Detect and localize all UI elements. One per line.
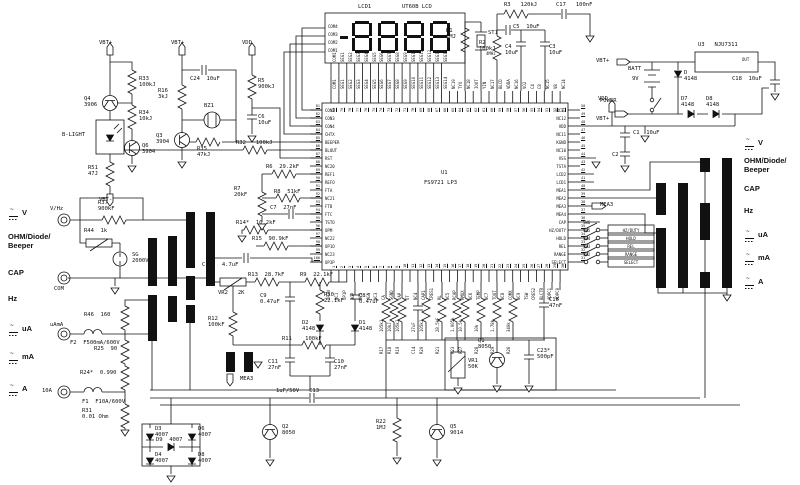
lcd-pin-SEG10: SEG10 [411,50,416,62]
ic-pin-number: 22 [498,264,502,268]
acdc-icon [8,328,19,337]
ic-pin-number: 44 [581,152,585,156]
acdc-icon [744,142,755,151]
ic-pin-number: 83 [309,120,320,124]
selector-left-v: V [22,208,27,217]
lcd-digit-3-segment [404,38,407,51]
switch-ref-SW2: SW2 [583,252,590,257]
label-r3: R3 120kJ [504,2,537,8]
ic-pin-number: 67 [435,108,439,112]
label-r24: R24* 0.990 [80,370,116,376]
ic-pin-left-NC21: NC21 [325,196,335,201]
ic-pin-number: 73 [387,108,391,112]
ic-pin-right-NC10: NC10 [522,148,566,153]
ic-pin-number: 78 [348,108,352,112]
label-q3: Q3 3904 [156,133,169,146]
label-batt-value: 9V [632,76,639,82]
label-vdd-1: VDD [242,40,252,46]
ic-pin-number: 42 [581,168,585,172]
ic-pin-left-OPM: OPM [325,228,332,233]
ic-pin-number: 86 [309,144,320,148]
ic-pin-bottom-RL: RL [437,295,442,300]
ic-pin-right-NC11: NC11 [522,132,566,137]
ic-pin-top-TYO: TYO [458,82,463,89]
ic-pin-bottom-ADPC1: ADPC1 [547,288,552,300]
label-com3: COM3 [328,33,338,38]
label-r9: R9 22.1kF [300,272,333,278]
ic-pin-top-NC18: NC18 [466,79,471,89]
lcd-digit-2-segment [378,38,381,51]
resistor-R17 [382,298,390,322]
ic-pin-number: 7 [379,266,383,268]
label-u3: U3 NJU7311 [698,42,738,48]
label-q5: Q5 9014 [450,424,463,437]
ic-pin-bottom-RCAP: RCAP [452,290,457,300]
ic-pin-number: 39 [581,192,585,196]
label-r34: R34 10kJ [139,110,152,123]
label-u1-ref: U1 [441,170,448,176]
ic-pin-right-NC12: NC12 [522,116,566,121]
ic-pin-number: 59 [498,108,502,112]
value-C14: 27uF [411,322,416,332]
label-c23: C23* 500pF [537,348,554,361]
lcd-digit-2-segment [395,23,398,36]
label-r46: R46 160 [84,312,111,318]
spark-gap [113,252,127,266]
ic-pin-number: 45 [581,144,585,148]
lcd-pin-SEG12: SEG12 [427,50,432,62]
buzzer [204,112,220,128]
label-d7: D7 4148 [681,96,694,109]
label-vr2: VR2 2K [218,290,245,296]
ic-pin-bottom-CAP1: CAP1 [421,290,426,300]
resistor-R20 [422,298,430,322]
ic-pin-number: 96 [309,224,320,228]
ic-pin-number: 17 [458,264,462,268]
ic-pin-number: 20 [482,264,486,268]
fuse-f1 [84,388,102,393]
lcd-pin-SEG4: SEG4 [364,52,369,62]
ic-pin-number: 91 [309,184,320,188]
ic-pin-top-SEG8: SEG8 [395,79,400,89]
label-com2: COM2 [328,41,338,46]
label-jack-vhz: V/Hz [50,206,63,212]
power-switch [650,98,661,112]
value-R18: 10kJ [387,322,392,332]
ic-pin-bottom-SGND: SGND [389,290,394,300]
label-lcd-part: UT60B LCD [402,4,432,10]
label-c13: 1uF/50V C13 [276,388,319,394]
label-jack-com: COM [54,286,64,292]
label-d4: D4 4007 [155,452,168,465]
value-R20: 105kJ [419,320,424,332]
ic-pin-number: 5 [364,266,368,268]
ic-pin-number: 89 [309,168,320,172]
ic-pin-right-RANGE: RANGE [522,252,566,257]
ic-pin-number: 50 [581,104,585,108]
label-q4: Q4 3906 [84,96,97,109]
ic-pin-number: 90 [309,176,320,180]
ic-pin-right-NC13: NC13 [522,108,566,113]
lcd-pin-COM1: COM1 [332,52,337,62]
ic-pin-top-SEG12: SEG12 [427,77,432,89]
ic-pin-top-NC14: NC14 [561,79,566,89]
ic-pin-number: 79 [340,108,344,112]
lcd-digit-2-segment [381,21,395,24]
ic-pin-bottom-NC7: NC7 [484,293,489,300]
ic-pin-bottom-NC5: NC5 [445,293,450,300]
lcd-digit-1-segment [355,35,369,38]
ref-R26: R26 [506,347,511,354]
ic-pin-bottom-NC6: NC6 [468,293,473,300]
ic-pin-left-NC22: NC22 [325,236,335,241]
schematic-artwork [0,0,800,485]
lcd-pin-SEG11: SEG11 [419,50,424,62]
label-c17: C17 100nF [556,2,592,8]
ic-pin-bottom-CRES2: CRES2 [531,288,536,300]
ic-pin-number: 72 [395,108,399,112]
ic-pin-bottom-VAP: VAP [397,293,402,300]
lcd-digit-3-segment [404,23,407,36]
label-st1: ST1 [488,30,498,36]
ic-pin-bottom-OP1P: OP1P [342,290,347,300]
lcd-digit-3-segment [407,35,421,38]
ic-pin-bottom-RMUX: RMUX [460,290,465,300]
ic-pin-bottom-NC1: NC1 [334,293,339,300]
ic-pin-number: 15 [443,264,447,268]
jack-uama [58,328,70,340]
ic-pin-top-SEG13: SEG13 [435,77,440,89]
label-u3-out: OUT [742,58,749,63]
ic-pin-right-MEA4: MEA4 [522,212,566,217]
ic-pin-top-SEG4: SEG4 [364,79,369,89]
lcd-pin-SEG14: SEG14 [443,50,448,62]
label-q2: Q2 8050 [282,424,295,437]
ref-C14: C14 [411,347,416,354]
label-r51: R51 47J [88,165,98,178]
ref-R27: R27 [458,347,463,354]
ref-R20: R20 [419,347,424,354]
lcd-digit-2-segment [381,35,395,38]
label-r44: R44 1k [84,228,107,234]
ref-R28: R28 [474,347,479,354]
selector-left-hz: Hz [8,294,17,303]
label-r14: R14* 10.2kF [236,220,276,226]
ic-pin-number: 76 [364,108,368,112]
value-R28: 10k [474,325,479,332]
ref-R18: R18 [387,347,392,354]
ic-pin-right-SELECT: SELECT [522,260,566,265]
selector-left-ohm: OHM/Diode/ Beeper [8,232,51,251]
label-vbt-plus-1: VBT+ [99,40,112,46]
jack-vhz [58,214,70,226]
lcd-pin-SEG2: SEG2 [348,52,353,62]
ic-pin-number: 40 [581,184,585,188]
ic-pin-top-SEG6: SEG6 [379,79,384,89]
label-c12: C12 4.7uF [202,262,238,268]
ic-pin-number: 75 [372,108,376,112]
ic-pin-number: 98 [309,240,320,244]
lcd-pin-SEG3: SEG3 [356,52,361,62]
ic-pin-top-YIN: YIN [482,82,487,89]
ic-pin-number: 68 [427,108,431,112]
ic-pin-top-C8: C8 [537,84,542,89]
ref-R19: R19 [395,347,400,354]
acdc-icon [744,234,755,243]
label-com4: COM4 [328,25,338,30]
selector-right-a: A [758,277,763,286]
ic-pin-top-SEG11: SEG11 [419,77,424,89]
label-r2: R2 100kJ [479,40,496,53]
ic-pin-top-SEG7: SEG7 [387,79,392,89]
label-r31: R31 0.01 Ohm [82,408,109,421]
ic-pin-number: 3 [348,266,352,268]
label-f1: F1 F10A/600V [82,399,125,405]
ic-pin-left-CON3: CON3 [325,116,335,121]
ic-pin-number: 41 [581,176,585,180]
switch-ref-SW6: SW6 [583,220,590,225]
ic-pin-number: 81 [309,104,320,108]
ic-pin-bottom-TSW: TSW [524,293,529,300]
label-jack-10a: 10A [42,388,52,394]
lcd-minus-sign [340,36,348,39]
lcd-digit-1-segment [369,23,372,36]
ic-pin-number: 4 [356,266,360,268]
ic-pin-bottom-NC3: NC3 [373,293,378,300]
lcd-digit-2-segment [378,23,381,36]
ic-pin-top-VDDA: VDDA [506,79,511,89]
ic-pin-number: 58 [506,108,510,112]
jack-10a [58,386,70,398]
lcd-pin-SEG7: SEG7 [387,52,392,62]
ic-pin-bottom-TOUT: TOUT [492,290,497,300]
ic-pin-number: 47 [581,128,585,132]
battery-plates [644,70,660,87]
ic-pin-left-OP3P: OP3P [325,260,335,265]
ic-pin-number: 37 [581,208,585,212]
resistor-R28 [477,298,485,322]
lcd-digit-1-segment [369,38,372,51]
label-batt: BATT [628,66,641,72]
fuse-f2 [84,330,102,335]
label-c3: C3 10uF [549,44,562,57]
ic-pin-number: 12 [419,264,423,268]
acdc-icon [744,281,755,290]
label-vbt-plus-3: VBT+ [596,58,609,64]
label-d6: D6 4007 [198,426,211,439]
ic-pin-number: 18 [466,264,470,268]
ic-pin-number: 92 [309,192,320,196]
ic-pin-bottom-AGN: AGN [366,293,371,300]
label-vdd-2: VDD [598,96,608,102]
label-c5: C5 10uF [513,24,540,30]
ic-pin-left-NC20: NC20 [325,164,335,169]
ic-pin-number: 23 [506,264,510,268]
label-d8: D8 4148 [706,96,719,109]
label-d9: D9 4007 [156,437,183,443]
ic-pin-number: 69 [419,108,423,112]
label-lcd-ref: LCD1 [358,4,371,10]
acdc-icon [8,212,19,221]
label-r33: R33 100kJ [139,76,156,89]
ic-pin-number: 49 [581,112,585,116]
schematic-canvas: VBT+ R33 100kJ Q4 3906 R34 10kJ B-LIGHT … [0,0,800,485]
ic-pin-bottom-OT: OT [405,295,410,300]
ic-pin-number: 100 [309,256,320,260]
lcd-digit-3-segment [421,23,424,36]
ic-pin-number: 84 [309,128,320,132]
ic-pin-bottom-CRES1: CRES1 [429,288,434,300]
label-r5: R5 900kJ [258,78,275,91]
ic-pin-bottom-OP3N: OP3N [326,290,331,300]
label-c2: C2 [612,152,619,158]
capacitor-C14 [413,306,423,310]
ic-pin-left-FTA: FTA [325,188,332,193]
ic-pin-number: 64 [458,108,462,112]
label-r13: R13 28.7kF [248,272,284,278]
label-bz1: BZ1 [204,103,214,109]
label-mea3-left: MEA3 [240,376,253,382]
ic-pin-number: 71 [403,108,407,112]
label-r8: R8 51kF [274,189,301,195]
ref-R17: R17 [379,347,384,354]
label-backlight: B-LIGHT [62,132,85,138]
ic-pin-left-FTB: FTB [325,204,332,209]
ic-pin-right-TSTA: TSTA [522,164,566,169]
lcd-digit-1-segment [352,38,355,51]
ic-pin-number: 88 [309,160,320,164]
ic-pin-top-SEG3: SEG3 [356,79,361,89]
ic-pin-number: 24 [514,264,518,268]
label-r15: R15 90.9kF [252,236,288,242]
ic-pin-right-KGND: KGND [522,140,566,145]
ic-pin-number: 43 [581,160,585,164]
switch-label-SW4: REL [608,244,654,249]
selector-right-ma: mA [758,253,770,262]
selector-right-ua: uA [758,230,768,239]
selector-right-cap: CAP [744,184,760,193]
ic-pin-top-VB: VB [553,84,558,89]
ic-pin-left-BLOUT: BLOUT [325,148,337,153]
label-c1: C1 10uF [633,130,660,136]
ic-pin-left-REFO: REFO [325,180,335,185]
lcd-pin-SEG8: SEG8 [395,52,400,62]
ic-pin-number: 66 [443,108,447,112]
selector-right-ohm: OHM/Diode/ Beeper [744,156,787,175]
ic-pin-right-CAP: CAP [522,220,566,225]
ic-pin-right-LCD2: LCD2 [522,172,566,177]
label-d-prot: D 4148 [684,70,697,83]
ic-pin-left-TSTO: TSTO [325,220,335,225]
ic-pin-top-NC16: NC16 [514,79,519,89]
value-R19: 105kJ [395,320,400,332]
label-r25: R25 90 [94,346,117,352]
ic-pin-left-FTC: FTC [325,212,332,217]
ic-pin-number: 63 [466,108,470,112]
ic-pin-number: 87 [309,152,320,156]
ic-pin-number: 85 [309,136,320,140]
pot-r44 [86,239,112,247]
ic-pin-number: 16 [451,264,455,268]
ref-R21: R21 [435,347,440,354]
ic-pin-right-HZ/DUTY: HZ/DUTY [522,228,566,233]
switch-contact-SW2 [584,260,588,264]
ic-pin-number: 95 [309,216,320,220]
switch-ref-SW4: SW4 [583,236,590,241]
ic-pin-bottom-BLCTR: BLCTR [539,288,544,300]
switch-ref-SW5: SW5 [583,228,590,233]
switch-label-SW6: HZ/DUTY [608,228,654,233]
selector-left-a: A [22,384,27,393]
value-R17: 105kJ [379,320,384,332]
ic-pin-number: 6 [372,266,376,268]
label-mea3-right: MEA3 [600,202,613,208]
ic-pin-bottom-NC4: NC4 [413,293,418,300]
ic-pin-top-SEG2: SEG2 [348,79,353,89]
ic-pin-top-SEG5: SEG5 [372,79,377,89]
label-r35: R35 47kJ [197,146,210,159]
ic-pin-number: 65 [451,108,455,112]
ic-pin-top-C4: C4 [530,84,535,89]
ic-pin-number: 19 [474,264,478,268]
ic-pin-top-VO2: VO2 [522,82,527,89]
label-c11: C11 27nF [268,359,281,372]
label-c6: C6 10uF [258,114,271,127]
ic-pin-left-CON2: CON2 [325,108,335,113]
value-R26: 340k [506,322,511,332]
ic-pin-bottom-ADPC0: ADPC0 [555,288,560,300]
ic-pin-top-SEG14: SEG14 [443,77,448,89]
ic-pin-number: 99 [309,248,320,252]
ic-pin-number: 2 [340,266,344,268]
label-r11: R11 100kF [282,336,322,342]
label-st1-value: 4MHz [486,52,496,57]
lcd-digit-1-segment [352,23,355,36]
ic-pin-right-LCD1: LCD1 [522,180,566,185]
switch-ref-SW3: SW3 [583,244,590,249]
ic-pin-number: 74 [379,108,383,112]
lcd-digit-4-segment [430,23,433,36]
ic-pin-left-REF1: REF1 [325,172,335,177]
ic-pin-bottom-COMX: COMX [508,290,513,300]
label-r1: R1 1MJ [446,28,456,41]
ic-pin-right-MEA2: MEA2 [522,196,566,201]
ic-pin-bottom-NC2: NC2 [358,293,363,300]
lcd-pin-SEG1: SEG1 [340,52,345,62]
lcd-pin-SEG9: SEG9 [403,52,408,62]
ic-pin-bottom-TEMP: TEMP [476,290,481,300]
ic-pin-number: 10 [403,264,407,268]
ic-pin-top-BLCD: BLCD [498,79,503,89]
ic-pin-bottom-AGP: AGP [350,293,355,300]
ic-pin-number: 9 [395,266,399,268]
ic-pin-number: 13 [427,264,431,268]
label-u1-part: FS9721 LP3 [424,180,457,186]
switch-label-SW2: SELECT [608,260,654,265]
ic-pin-top-SEG1: SEG1 [340,79,345,89]
switch-label-SW3: RANGE [608,252,654,257]
ic-pin-bottom-NC8: NC8 [500,293,505,300]
label-d1: D1 4148 [359,320,372,333]
label-d8b: D8 4007 [198,452,211,465]
ic-pin-right-HOLD: HOLD [522,236,566,241]
ic-pin-left-RST: RST [325,156,332,161]
label-sg: SG 2000V [132,252,149,265]
lcd-pin-SEG6: SEG6 [379,52,384,62]
ic-pin-number: 38 [581,200,585,204]
label-r16: R16 3kJ [158,88,168,101]
lcd-pin-SEG13: SEG13 [435,50,440,62]
